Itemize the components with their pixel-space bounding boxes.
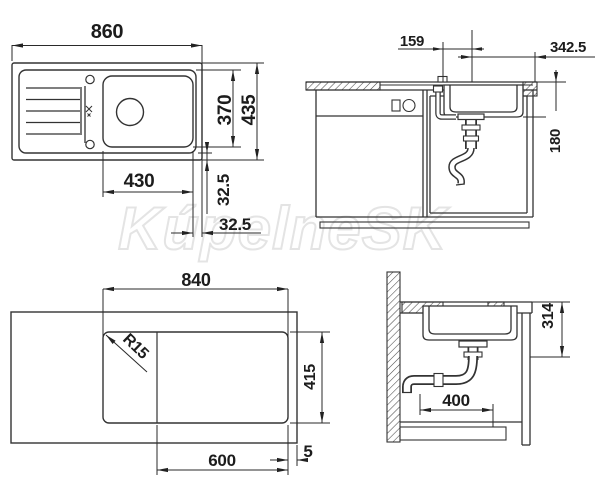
dim-bowl-section-length-label: 600 [192,451,252,471]
drain-hole [117,99,144,126]
door-symbol-circle [403,100,415,112]
tap-hole-bottom [86,140,94,148]
dim-rim-offset-horizontal-label: 32.5 [205,215,265,235]
countertop-hatch-left [306,82,380,90]
cutout-plan-drawing [11,312,297,443]
plinth [320,222,529,228]
front-section-drawing [306,77,537,229]
dim-cutout-length-label: 840 [166,270,226,290]
dim-bowl-width-label: 430 [109,172,169,192]
dim-drain-clearance-label: 400 [426,391,486,411]
dim-rim-offset-vertical-label: 32.5 [214,160,234,220]
dim-overall-length-label: 860 [77,22,137,42]
technical-drawing-canvas [0,0,600,492]
dim-edge-gap-label: 5 [278,442,338,462]
wall-hatch [387,272,400,442]
tap-hole-top [86,75,94,83]
plan-view-drawing [12,63,202,160]
bowl-section-side [423,306,517,340]
drain-piping-side [402,341,487,393]
dim-installation-depth-label: 314 [539,286,559,346]
dim-drain-offset-right-label: 342.5 [538,38,598,58]
drainboard-grooves [26,86,85,143]
door-symbol-square [392,100,400,111]
side-section-drawing [387,272,532,445]
dim-overall-depth-label: 435 [240,80,260,140]
overflow-mark-icon [86,106,92,117]
countertop-hatch-right [523,82,537,96]
dim-cutout-depth-label: 415 [301,347,321,407]
dim-rim-depth-label: 370 [216,80,236,140]
plinth-side [400,427,506,440]
technical-drawing-sheet: KúpelneSK [0,0,600,492]
drain-trap [452,114,484,185]
dim-bowl-depth-label: 180 [546,111,566,171]
dim-drain-offset-left-label: 159 [382,32,442,52]
